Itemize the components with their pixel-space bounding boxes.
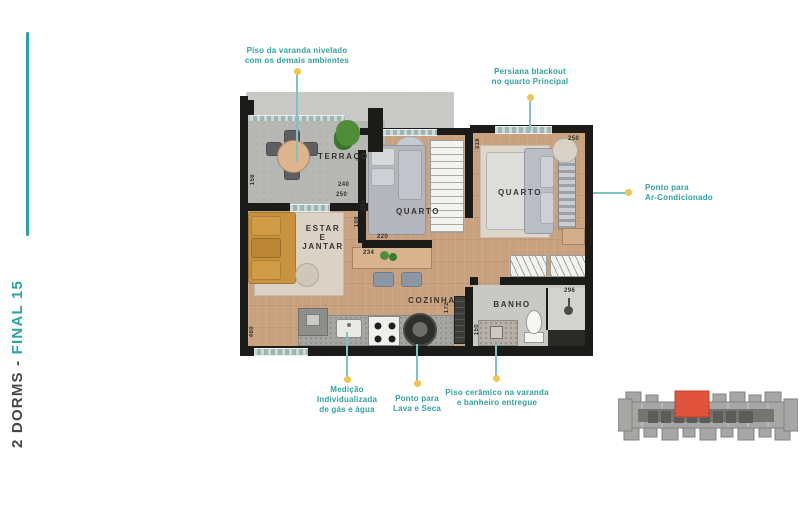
leader-dot bbox=[294, 68, 301, 75]
stool bbox=[401, 272, 422, 287]
leader-dot bbox=[527, 94, 534, 101]
meter bbox=[306, 314, 320, 326]
keyplan-highlight-unit bbox=[675, 391, 709, 417]
leader-dot bbox=[625, 189, 632, 196]
stove bbox=[368, 316, 400, 346]
dim-quarto2-width: 250 bbox=[568, 136, 579, 142]
wall-east bbox=[585, 125, 593, 356]
leader-dot bbox=[493, 375, 500, 382]
terrace-table bbox=[277, 140, 310, 173]
leader-line bbox=[416, 344, 418, 381]
wall-nub bbox=[248, 100, 254, 115]
page-title-highlight: FINAL 15 bbox=[9, 280, 26, 354]
sofa-cushion bbox=[251, 260, 281, 280]
room-label-banho: BANHO bbox=[488, 300, 536, 309]
wall-quarto1-south bbox=[362, 240, 432, 248]
dim-banho-door: 150 bbox=[474, 324, 480, 335]
wall-west bbox=[240, 96, 248, 356]
quarto2-window bbox=[495, 126, 552, 134]
leader-line bbox=[529, 101, 531, 131]
dim-estar-length: 460 bbox=[249, 326, 255, 337]
bench bbox=[562, 228, 585, 245]
basin bbox=[490, 326, 503, 339]
wall-banho-west bbox=[465, 287, 473, 350]
dim-island: 234 bbox=[363, 250, 374, 256]
island-plant bbox=[380, 251, 389, 260]
kitchen-sink bbox=[336, 319, 362, 338]
leader-dot bbox=[344, 376, 351, 383]
page-title-prefix: 2 DORMS - bbox=[9, 354, 26, 448]
leader-dot bbox=[414, 380, 421, 387]
dim-quarto1-width: 220 bbox=[377, 234, 388, 240]
wardrobe bbox=[510, 255, 547, 277]
wall-banho-north bbox=[500, 277, 593, 285]
floor-plan: TERRAÇO ESTAR E JANTAR QUARTO QUARTO COZ… bbox=[240, 88, 593, 356]
dim-corridor: 172 bbox=[444, 302, 450, 313]
wall-terrace-south bbox=[248, 203, 290, 211]
dim-estar-top: 250 bbox=[336, 192, 347, 198]
dim-shower: 296 bbox=[564, 288, 575, 294]
shower-arm bbox=[568, 298, 570, 308]
dim-hall: 108 bbox=[354, 216, 360, 227]
wardrobe bbox=[550, 255, 587, 277]
dim-terraco-width: 240 bbox=[338, 182, 349, 188]
sofa-cushion bbox=[251, 216, 281, 236]
leader-line bbox=[593, 192, 626, 194]
wardrobe bbox=[430, 140, 464, 233]
room-label-terraco: TERRAÇO bbox=[318, 152, 362, 161]
wall-quarto1-west bbox=[358, 150, 366, 243]
dim-quarto2-side: 318 bbox=[475, 138, 481, 149]
faucet bbox=[347, 323, 351, 327]
washer-lava-seca bbox=[403, 313, 437, 347]
page-title: 2 DORMS - FINAL 15 bbox=[9, 246, 33, 448]
pillow bbox=[540, 156, 554, 188]
terrace-door-window bbox=[290, 204, 330, 212]
wall-quarto2-west bbox=[465, 133, 473, 218]
leader-line bbox=[346, 332, 348, 377]
quarto1-window bbox=[383, 129, 437, 136]
dim-quarto1-side: 225 bbox=[361, 200, 367, 211]
shaft bbox=[548, 330, 585, 346]
pillow bbox=[371, 168, 395, 186]
brand-accent-line bbox=[26, 32, 29, 236]
room-label-estar: ESTAR E JANTAR bbox=[300, 224, 346, 251]
keyplan bbox=[618, 383, 798, 449]
leader-line bbox=[495, 344, 497, 376]
annotation-piso-ceramico: Piso cerâmico na varanda e banheiro entr… bbox=[417, 388, 577, 408]
living-window bbox=[254, 348, 308, 356]
side-table bbox=[295, 263, 319, 287]
room-label-quarto1: QUARTO bbox=[390, 207, 446, 216]
sofa-cushion bbox=[251, 238, 281, 258]
room-label-cozinha: COZINHA bbox=[402, 296, 462, 305]
annotation-persiana: Persiana blackout no quarto Principal bbox=[450, 67, 610, 87]
dim-terraco-height: 158 bbox=[250, 174, 256, 185]
stool bbox=[373, 272, 394, 287]
island-plant bbox=[389, 253, 397, 261]
wall-banho-north bbox=[470, 277, 478, 285]
annotation-piso-varanda: Piso da varanda nivelado com os demais a… bbox=[217, 46, 377, 66]
blanket bbox=[398, 150, 422, 200]
toilet bbox=[526, 310, 542, 334]
plant bbox=[336, 120, 360, 146]
annotation-ar-condicionado: Ponto para Ar-Condicionado bbox=[645, 183, 755, 203]
room-label-quarto2: QUARTO bbox=[492, 188, 548, 197]
leader-line bbox=[296, 75, 298, 162]
